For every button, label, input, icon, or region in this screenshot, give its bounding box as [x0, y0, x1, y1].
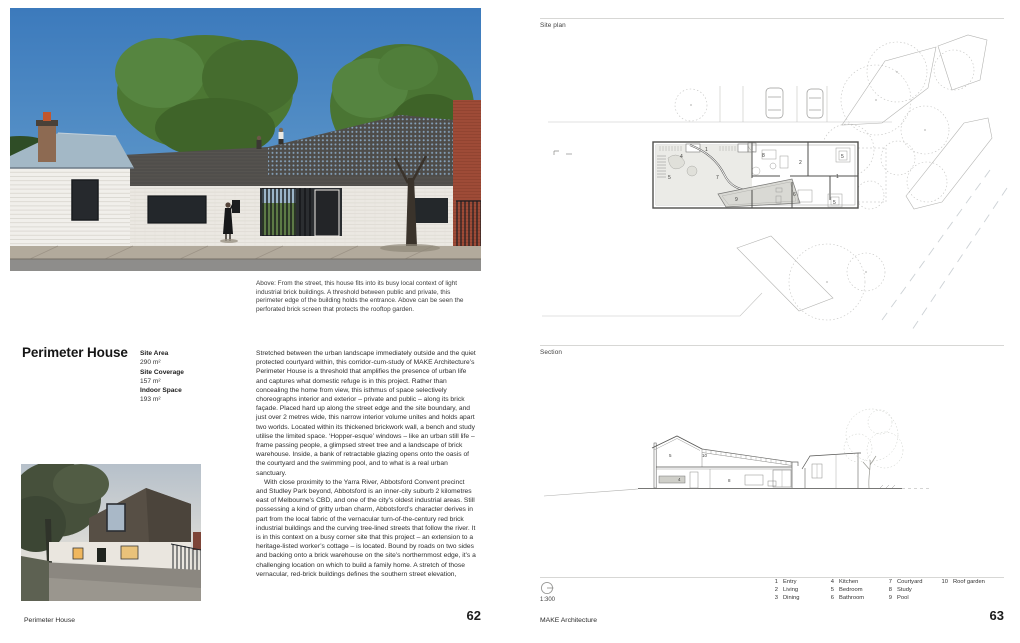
legend-label: Bedroom	[839, 587, 863, 595]
legend-column-2: 4Kitchen 5Bedroom 6Bathroom	[824, 579, 864, 603]
left-running-footer: Perimeter House	[24, 617, 75, 624]
legend-item: 7Courtyard	[882, 579, 922, 587]
legend-item: 10Roof garden	[938, 579, 985, 587]
legend-item: 2Living	[768, 587, 799, 595]
stat-label: Site Coverage	[140, 368, 240, 377]
site-plan-svg: 1 4 8 2 5 5 7 1 9 6 5	[540, 30, 1010, 340]
right-window	[412, 198, 448, 223]
body-paragraph-2: With close proximity to the Yarra River,…	[256, 478, 477, 579]
plan-room-number: 7	[716, 175, 719, 181]
plan-room-number: 4	[680, 154, 683, 160]
legend-item: 4Kitchen	[824, 579, 864, 587]
legend-num: 9	[882, 595, 892, 603]
left-page-number: 62	[430, 608, 481, 623]
legend-label: Entry	[783, 579, 797, 587]
legend-column-3: 7Courtyard 8Study 9Pool	[882, 579, 922, 603]
photo-caption: Above: From the street, this house fits …	[256, 280, 478, 314]
body-paragraph-1: Stretched between the urban landscape im…	[256, 349, 477, 478]
plan-room-number: 1	[836, 174, 839, 180]
dusk-photo	[21, 464, 201, 601]
site-plan-rule	[540, 18, 1004, 19]
legend-num: 3	[768, 595, 778, 603]
legend-label: Courtyard	[897, 579, 922, 587]
legend-num: 4	[824, 579, 834, 587]
scale-icon	[540, 581, 554, 595]
street-photo-image	[10, 8, 481, 271]
plan-boundary	[858, 148, 886, 202]
legend-item: 1Entry	[768, 579, 799, 587]
legend-column-4: 10Roof garden	[938, 579, 985, 587]
section-ground	[544, 485, 932, 496]
site-plan-drawing: 1 4 8 2 5 5 7 1 9 6 5	[540, 30, 1010, 340]
plan-room-number: 2	[799, 160, 802, 166]
legend-num: 6	[824, 595, 834, 603]
section-room-number: 8	[728, 478, 731, 483]
section-cottage	[802, 453, 861, 488]
plan-room-number: 5	[833, 200, 836, 206]
plan-room-number: 8	[762, 153, 765, 159]
plan-room-number: 1	[705, 147, 708, 153]
plan-room-number: 5	[841, 154, 844, 160]
chimney-pot	[43, 112, 51, 121]
stat-label: Indoor Space	[140, 386, 240, 395]
legend-item: 5Bedroom	[824, 587, 864, 595]
legend-column-1: 1Entry 2Living 3Dining	[768, 579, 799, 603]
road	[10, 259, 481, 271]
stat-label: Site Area	[140, 349, 240, 358]
stat-value: 157 m²	[140, 377, 240, 386]
plan-room-number: 6	[793, 192, 796, 198]
legend-num: 7	[882, 579, 892, 587]
legend-rule	[540, 577, 1004, 578]
body-text: Stretched between the urban landscape im…	[256, 349, 477, 579]
cottage-window	[72, 180, 98, 220]
street-window	[148, 196, 206, 223]
right-running-footer: MAKE Architecture	[540, 617, 597, 624]
entry-screen	[260, 188, 342, 236]
legend-label: Dining	[783, 595, 799, 603]
right-page-number: 63	[953, 608, 1004, 623]
legend-item: 9Pool	[882, 595, 922, 603]
stat-value: 193 m²	[140, 395, 240, 404]
section-svg: 5 10 4 8	[540, 390, 1010, 575]
plan-datum-mark	[554, 151, 572, 155]
site-plan-label: Site plan	[540, 22, 566, 29]
street-photo	[10, 8, 481, 271]
section-rule	[540, 345, 1004, 346]
project-stats: Site Area 290 m² Site Coverage 157 m² In…	[140, 349, 240, 405]
legend-label: Roof garden	[953, 579, 985, 587]
legend-item: 6Bathroom	[824, 595, 864, 603]
section-room-number: 5	[669, 453, 672, 458]
plan-dashed-road	[882, 170, 1007, 330]
legend-label: Bathroom	[839, 595, 864, 603]
book-spread: Above: From the street, this house fits …	[0, 0, 1020, 643]
chimney	[38, 124, 56, 162]
section-room-number: 10	[702, 453, 708, 458]
plan-room-number: 5	[668, 175, 671, 181]
legend-num: 8	[882, 587, 892, 595]
legend-item: 8Study	[882, 587, 922, 595]
legend-num: 5	[824, 587, 834, 595]
plan-cars	[766, 88, 823, 118]
legend-label: Living	[783, 587, 798, 595]
mailbox	[232, 200, 240, 213]
section-label: Section	[540, 349, 562, 356]
stat-value: 290 m²	[140, 358, 240, 367]
plan-building: 1 4 8 2 5 5 7 1 9 6 5	[653, 142, 858, 208]
project-title: Perimeter House	[22, 345, 128, 360]
legend-label: Pool	[897, 595, 909, 603]
plan-room-number: 9	[735, 197, 738, 203]
legend-label: Study	[897, 587, 912, 595]
scale-label: 1:300	[540, 597, 555, 603]
section-house	[652, 436, 798, 488]
legend-num: 2	[768, 587, 778, 595]
dusk-photo-image	[21, 464, 201, 601]
dusk-verge	[21, 556, 49, 601]
legend-num: 1	[768, 579, 778, 587]
section-drawing: 5 10 4 8	[540, 390, 1010, 575]
legend-label: Kitchen	[839, 579, 858, 587]
legend-num: 10	[938, 579, 948, 587]
legend-item: 3Dining	[768, 595, 799, 603]
